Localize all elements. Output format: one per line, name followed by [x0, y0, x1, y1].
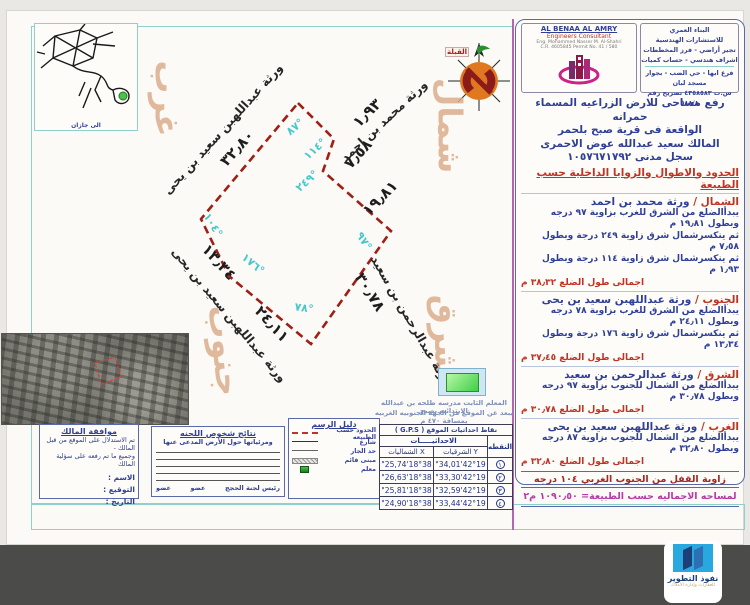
gps-row: ٢42°19'33,30"18°38'26,63": [380, 471, 513, 484]
angle-south-vertex: ٧٨°: [294, 300, 315, 316]
easting-value: 42°19'34,01": [434, 458, 488, 471]
north-total: اجمالى طول الضلع ٣٨٫٣٢ م: [521, 277, 739, 289]
field-signature: التوقيع :: [43, 484, 135, 496]
survey-intro: رفع مساحى للارض الزراعيه المسماء حمرانه …: [521, 97, 739, 165]
section-divider: [521, 366, 739, 367]
map-caption: الى جازان: [35, 122, 137, 129]
gps-row: ٤42°19'33,44"18°38'24,90": [380, 497, 513, 510]
owner-approval-line2: وجميع ما تم رفعه على سؤلية المالك: [43, 452, 135, 468]
northing-value: 18°38'25,81": [380, 484, 434, 497]
neighbour-line-symbol: [292, 450, 318, 456]
west-total: اجمالى طول الضلع ٣٢٫٨٠ م: [521, 456, 739, 468]
easting-value: 42°19'33,44": [434, 497, 488, 510]
legend-box: دليل الرسم الحدود حسب الطبيعه شارع حد ال…: [288, 418, 380, 499]
direction-word-west: غرب: [148, 60, 187, 136]
west-line2: وبطول ٣٢٫٨٠ م: [521, 444, 739, 456]
section-west: الغرب / ورثة عبداللهبن سعيد بن يحى يبدأا…: [521, 421, 739, 468]
watermark-title: نفوذ التطوير: [664, 574, 722, 583]
south-owner: ورثة عبداللهبن سعيد بن يحى: [542, 294, 692, 306]
direction-word-north: شمال: [430, 78, 469, 174]
document-page: الى جازان القبلة شمال غرب شرق جنوب ٣٢٫٨٠…: [6, 10, 744, 545]
firm-name-ar: البناء العمري: [641, 25, 738, 35]
watermark-n-icon: [673, 544, 713, 572]
gps-col-north: X الشمالیات: [380, 447, 434, 458]
landmark-line2: يبعد عن الموقع من الجهه الجنوبيه الغربيه…: [369, 409, 519, 425]
gps-col-coords: الاحداثيـــــات: [380, 436, 488, 447]
firm-name-en: AL BENAA AL AMRY: [523, 25, 635, 33]
committee-title: نتائج شخوص اللجنه: [156, 429, 280, 438]
roads-sketch: [35, 24, 137, 120]
civil-registry: سجل مدنى ١٠٥٧٦٧١٧٩٢: [521, 151, 739, 165]
header-divider: [645, 66, 734, 67]
logo-parallelogram-light: [694, 546, 703, 570]
west-label: الغرب /: [701, 421, 739, 433]
owner-approval-title: موافقة المالك: [43, 427, 135, 436]
landmark-symbol: [438, 368, 486, 396]
gps-title: نقاط احداثيات الموقع ( G.P.S ): [380, 425, 513, 436]
east-owner: ورثة عبدالرحمن بن سعيد: [564, 369, 694, 381]
field-date: التاريخ :: [43, 496, 135, 508]
gps-row: ٣42°19'32,59"18°38'25,81": [380, 484, 513, 497]
east-total: اجمالى طول الضلع ٣٠٫٧٨ م: [521, 404, 739, 416]
intro-line3: المالك سعيد عبدالله عوض الاحمرى: [521, 138, 739, 152]
section-divider: [521, 418, 739, 419]
point-number: ٣: [496, 486, 505, 495]
boundaries-heading: الحدود والاطوال والزوايا الداخلية حسب ال…: [521, 167, 739, 191]
committee-subtitle: ومرئياتها حول الأرض المدعى عنها: [156, 438, 280, 446]
legend-neighbour-limit: حد الجار: [321, 448, 376, 455]
firm-service2: اشراف هندسي - حساب كميات: [641, 55, 738, 65]
firm-branch: فرع ابها - حي الضب - بجوار مسجد لبان: [641, 68, 738, 88]
landmark-green-rect: [446, 373, 479, 392]
section-divider: [521, 193, 739, 194]
closing-angle: زاوية القفل من الجنوب الغربي ١٠٤ درجه: [521, 471, 739, 488]
west-line1: يبدأالضلع من الشمال للجنوب بزاوية ٨٧ درج…: [521, 433, 739, 445]
location-sketch-map: الى جازان: [34, 23, 138, 131]
section-east: الشرق / ورثة عبدالرحمن بن سعيد يبدأالضلع…: [521, 369, 739, 416]
south-total: اجمالى طول الضلع ٣٧٫٤٥ م: [521, 352, 739, 364]
south-label: الجنوب /: [695, 294, 739, 306]
gps-col-east: Y الشرقيات: [434, 447, 488, 458]
field-name: الاسم :: [43, 472, 135, 484]
point-number: ٢: [496, 473, 505, 482]
building-hatch-symbol: [292, 458, 318, 464]
writing-line: [156, 460, 280, 467]
north-label: الشمال /: [693, 196, 739, 208]
landmark-green-symbol: [300, 466, 309, 473]
firm-subtitle-en: Engineers Consultant: [523, 33, 635, 40]
south-line2: وبطول ٢٤٫١١ م: [521, 317, 739, 329]
owner-approval-line1: تم الاستدلال على الموقع من قبل المالك -: [43, 436, 135, 452]
west-owner: ورثة عبداللهبن سعيد بن يحى: [548, 421, 698, 433]
north-owner: ورثة محمد بن احمد: [591, 196, 690, 208]
total-area: لمساحه الاجماليه حسب الطبيعة= ١٠٩٠٫٥٠ م٢: [521, 488, 739, 507]
bottom-empty-strip-right: [513, 504, 745, 530]
writing-line: [156, 453, 280, 460]
committee-box: نتائج شخوص اللجنه ومرئياتها حول الأرض ال…: [151, 426, 285, 497]
east-line1: يبدأالضلع من الشمال للجنوب بزاوية ٩٧ درج…: [521, 381, 739, 393]
logo-parallelogram-dark: [683, 546, 692, 570]
firm-type-ar: للاستشارات الهندسية: [641, 35, 738, 45]
south-line3: ثم ينكسرشمال شرق زاوية ١٧٦ درجة وبطول ١٣…: [521, 329, 739, 352]
building-logo-icon: [557, 51, 601, 85]
owner-approval-box: موافقة المالك تم الاستدلال على الموقع من…: [39, 424, 139, 499]
intro-line2: الواقعة فى قرية صبح بلحمر: [521, 124, 739, 138]
gps-table: نقاط احداثيات الموقع ( G.P.S ) النقطه ال…: [379, 424, 513, 510]
legend-landmark: معلم: [312, 466, 376, 473]
boundaries-panel: AL BENAA AL AMRY Engineers Consultant En…: [515, 19, 745, 485]
east-line2: وبطول ٣٠٫٧٨ م: [521, 392, 739, 404]
firm-cr-en: C.R. 4605845 Permit No. 41 / 580: [523, 45, 635, 50]
point-number: ١: [496, 460, 505, 469]
firm-header-english: AL BENAA AL AMRY Engineers Consultant En…: [521, 23, 637, 93]
writing-line: [156, 474, 280, 481]
dashed-boundary-symbol: [292, 432, 318, 438]
street-line-symbol: [292, 441, 318, 447]
committee-member1: عضو: [191, 484, 206, 492]
committee-head: رئيس لجنة الحجج: [225, 484, 280, 492]
scanned-survey-document: { "header": { "firm_en": { "name": "AL B…: [0, 0, 750, 605]
point-number: ٤: [496, 499, 505, 508]
south-line1: يبدأالضلع من الشرق للغرب بزاوية ٧٨ درجه: [521, 306, 739, 318]
legend-street: شارع: [321, 439, 376, 446]
northing-value: 18°38'24,90": [380, 497, 434, 510]
northing-value: 18°38'25,74": [380, 458, 434, 471]
bottom-band: [0, 545, 750, 605]
gps-row: ١42°19'34,01"18°38'25,74": [380, 458, 513, 471]
watermark-subtitle: للعقارات وإدارة الأملاك: [664, 583, 722, 588]
writing-line: [156, 467, 280, 474]
firm-header-arabic: البناء العمري للاستشارات الهندسية تجير أ…: [640, 23, 739, 93]
writing-line: [156, 446, 280, 453]
section-north: الشمال / ورثة محمد بن احمد يبدأالضلع من …: [521, 196, 739, 289]
section-south: الجنوب / ورثة عبداللهبن سعيد بن يحى يبدأ…: [521, 294, 739, 364]
qibla-label: القبلة: [445, 47, 469, 57]
aerial-photo: [1, 333, 189, 425]
firm-service1: تجير أراضي - فرز المخططات: [641, 45, 738, 55]
north-line2: ثم ينكسرشمال شرق زاوية ٢٤٩ درجة وبطول ٧٫…: [521, 231, 739, 254]
legend-existing-building: مبنى قائم: [321, 457, 376, 464]
intro-line1: رفع مساحى للارض الزراعيه المسماء حمرانه: [521, 97, 739, 124]
east-label: الشرق /: [697, 369, 739, 381]
firm-header: AL BENAA AL AMRY Engineers Consultant En…: [521, 23, 739, 93]
committee-member2: عضو: [156, 484, 171, 492]
easting-value: 42°19'33,30": [434, 471, 488, 484]
section-divider: [521, 291, 739, 292]
north-line1: يبدأالضلع من الشرق للغرب بزاوية ٩٧ درجه …: [521, 208, 739, 231]
north-line3: ثم ينكسرشمال شرق زاوية ١١٤ درجة وبطول ١٫…: [521, 254, 739, 277]
gps-col-point: النقطه: [488, 436, 513, 458]
northing-value: 18°38'26,63": [380, 471, 434, 484]
easting-value: 42°19'32,59": [434, 484, 488, 497]
watermark-logo: نفوذ التطوير للعقارات وإدارة الأملاك: [664, 541, 722, 603]
